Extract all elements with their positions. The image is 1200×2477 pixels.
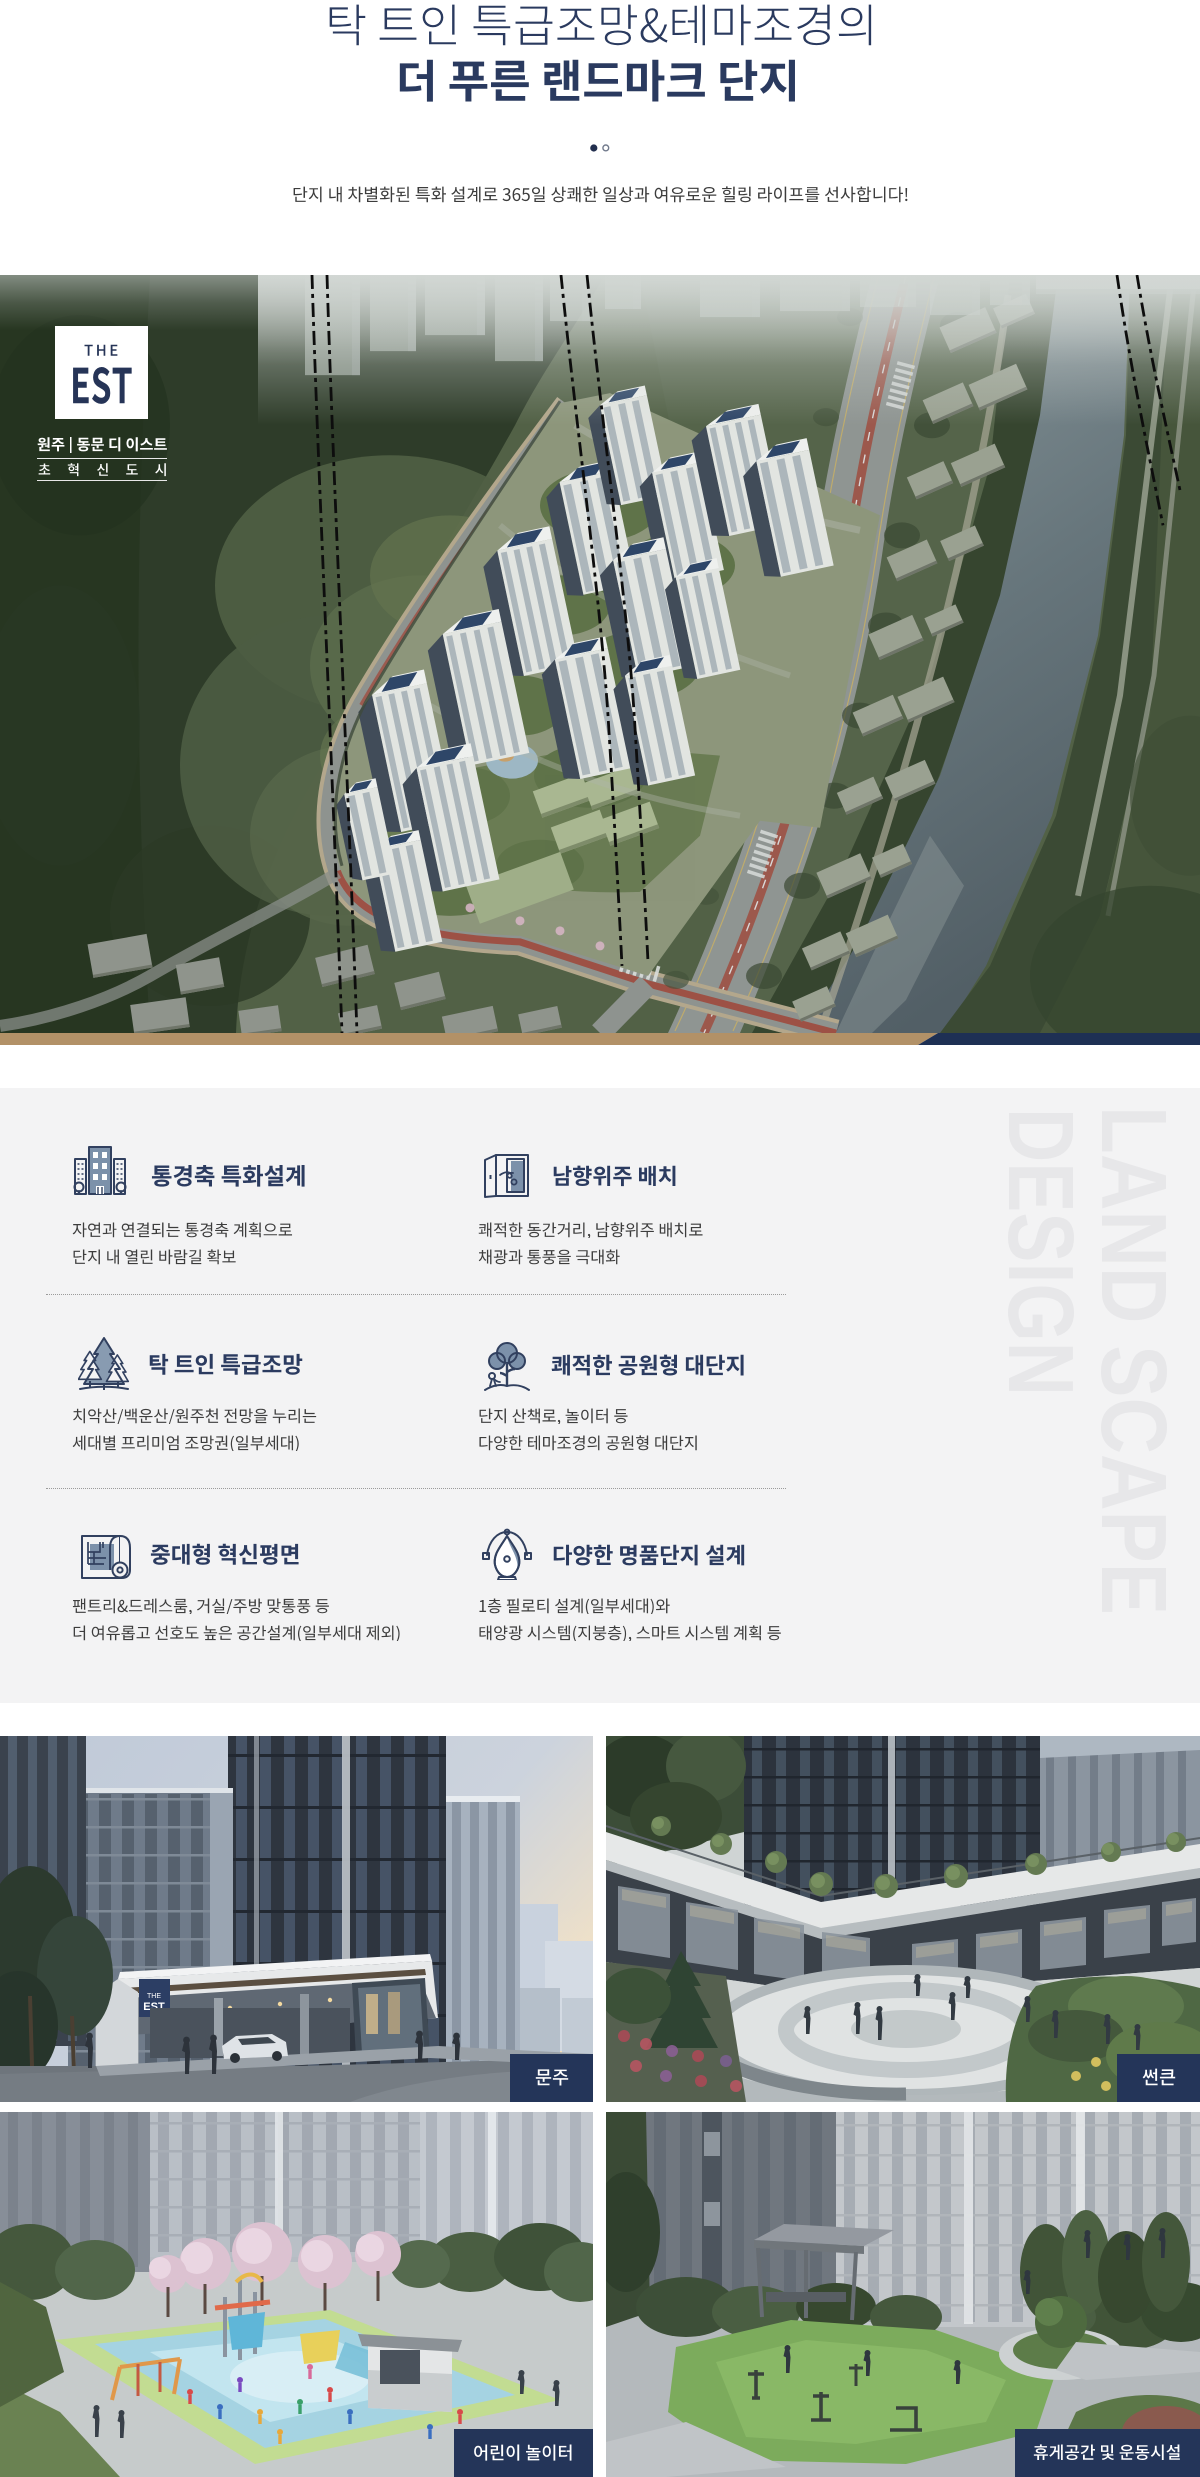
svg-text:DESIGN: DESIGN: [1000, 1108, 1093, 1396]
svg-text:THE: THE: [147, 1993, 161, 2000]
svg-text:LAND SCAPE: LAND SCAPE: [1082, 1106, 1186, 1615]
